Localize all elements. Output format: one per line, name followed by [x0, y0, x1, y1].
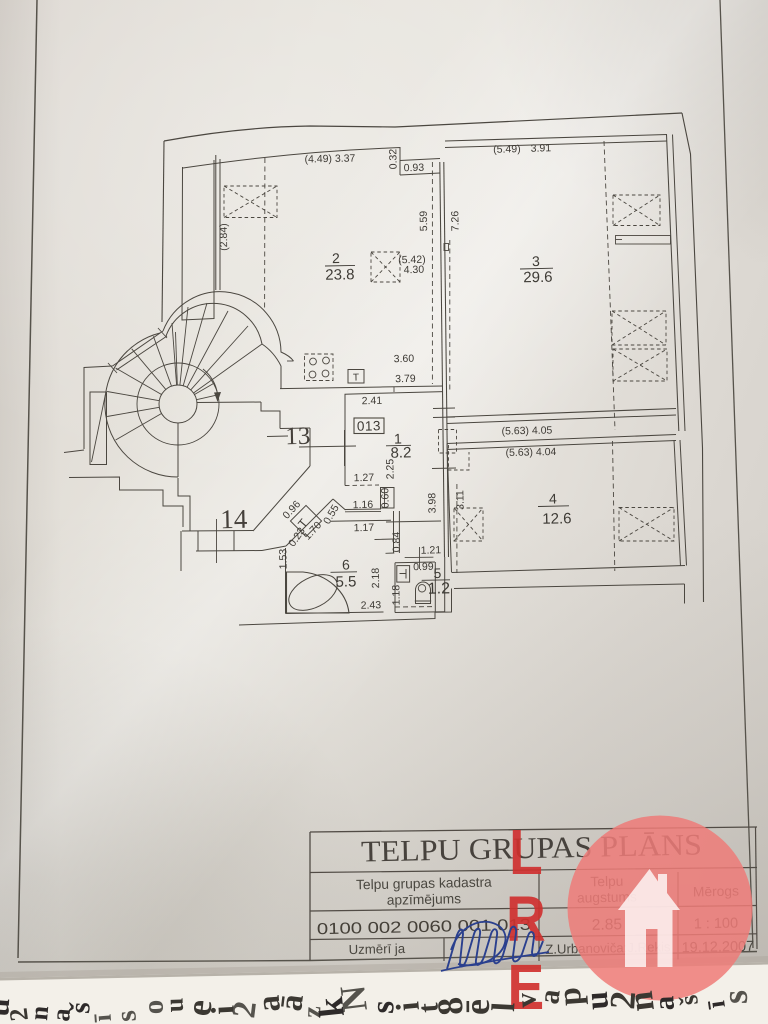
svg-text:š: š [64, 1001, 97, 1015]
svg-text:0.84: 0.84 [391, 532, 403, 553]
svg-text:0.99: 0.99 [413, 561, 434, 573]
svg-text:0100 002 0060 001 013: 0100 002 0060 001 013 [317, 917, 531, 938]
svg-text:Telpu grupas kadastra: Telpu grupas kadastra [356, 875, 492, 893]
svg-text:13: 13 [285, 423, 311, 451]
svg-text:3.98: 3.98 [426, 493, 438, 514]
svg-text:L: L [509, 816, 543, 888]
svg-text:apzīmējums: apzīmējums [387, 891, 462, 908]
svg-text:4.30: 4.30 [404, 264, 425, 276]
svg-text:3: 3 [532, 253, 540, 269]
svg-text:23.8: 23.8 [325, 266, 355, 284]
svg-text:2: 2 [332, 250, 340, 266]
svg-text:1.27: 1.27 [354, 472, 375, 484]
svg-text:3.60: 3.60 [394, 353, 415, 365]
svg-text:2.41: 2.41 [362, 395, 383, 407]
svg-text:0.93: 0.93 [404, 162, 425, 174]
svg-text:29.6: 29.6 [523, 269, 553, 287]
svg-text:(2.84): (2.84) [218, 223, 230, 251]
svg-text:6: 6 [342, 556, 350, 572]
svg-text:1.21: 1.21 [421, 544, 442, 556]
svg-text:T: T [353, 372, 359, 383]
svg-text:3.79: 3.79 [395, 373, 416, 385]
svg-text:1.16: 1.16 [353, 499, 374, 511]
svg-text:(5.63) 4.05: (5.63) 4.05 [501, 424, 552, 437]
svg-text:5: 5 [433, 565, 441, 581]
svg-text:(5.49): (5.49) [493, 143, 521, 156]
svg-text:0.55: 0.55 [321, 503, 342, 527]
svg-text:5.5: 5.5 [335, 573, 356, 590]
svg-text:(4.49) 3.37: (4.49) 3.37 [304, 152, 355, 165]
svg-text:4: 4 [549, 490, 557, 506]
svg-text:s: s [715, 990, 755, 1004]
svg-text:12.6: 12.6 [542, 510, 572, 528]
svg-text:(5.63) 4.04: (5.63) 4.04 [505, 446, 556, 459]
svg-text:2.43: 2.43 [361, 599, 382, 611]
svg-text:3.91: 3.91 [531, 142, 552, 154]
svg-text:1.18: 1.18 [390, 585, 402, 606]
svg-text:1.17: 1.17 [354, 522, 375, 534]
svg-text:2.18: 2.18 [370, 568, 382, 589]
svg-text:1.53: 1.53 [277, 549, 289, 570]
svg-text:3.11: 3.11 [454, 490, 466, 510]
svg-text:2.25: 2.25 [384, 459, 396, 480]
svg-text:7.26: 7.26 [449, 211, 461, 232]
svg-text:013: 013 [357, 418, 381, 433]
svg-text:1.2: 1.2 [428, 580, 451, 597]
svg-text:Uzmērī ja: Uzmērī ja [349, 941, 406, 957]
svg-text:14: 14 [220, 504, 248, 535]
svg-text:5.59: 5.59 [418, 211, 430, 232]
svg-text:0.32: 0.32 [387, 149, 399, 170]
svg-text:0.60: 0.60 [379, 488, 391, 509]
